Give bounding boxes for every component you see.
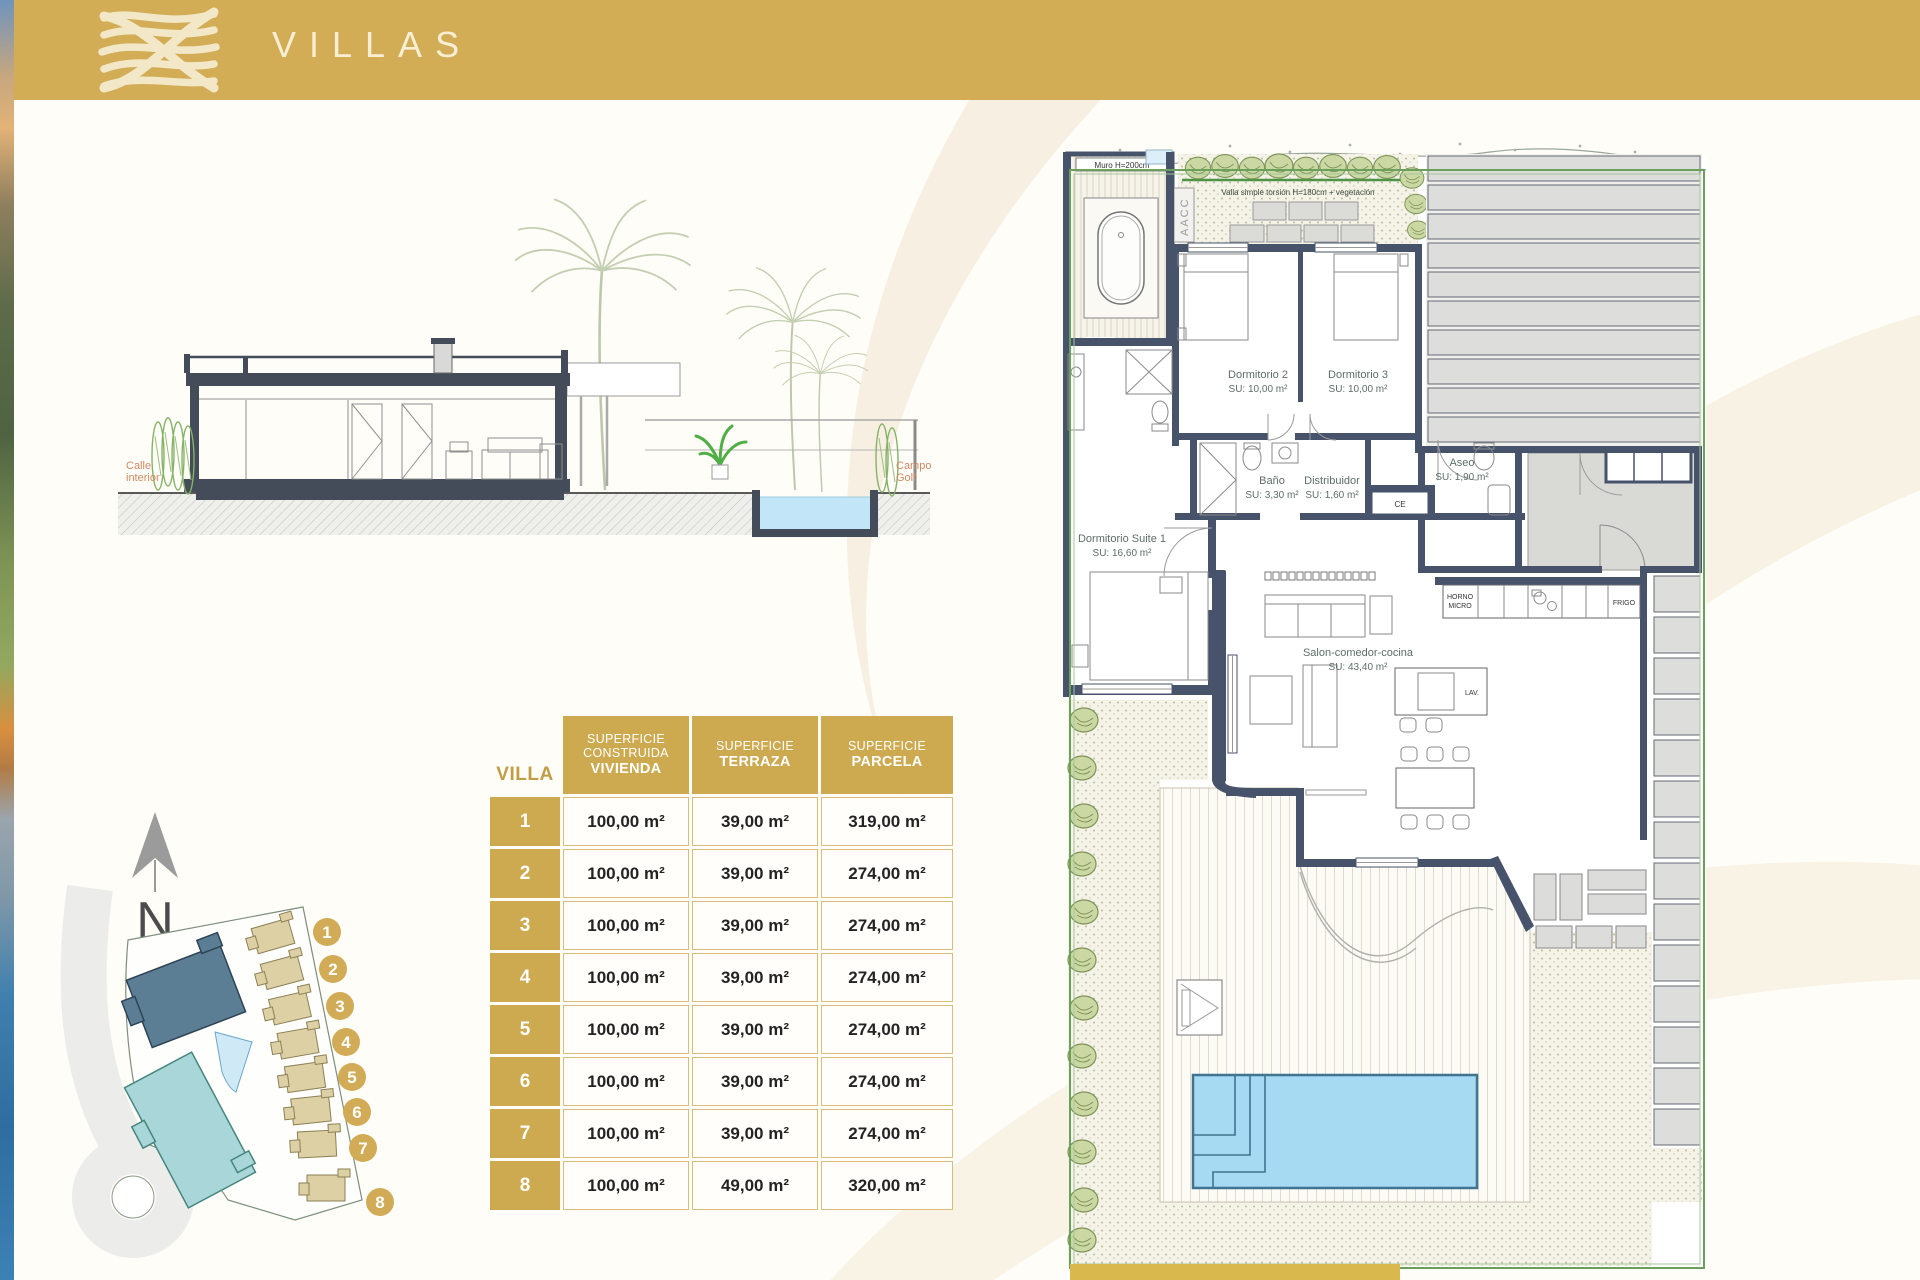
plot-badge-3: 3	[335, 997, 344, 1016]
ce-closet: CE	[1372, 492, 1428, 514]
room-label: Dormitorio Suite 1	[1078, 533, 1166, 545]
house-section	[184, 338, 570, 500]
table-cell-parcela: 274,00 m²	[821, 1109, 953, 1158]
table-row-villa-number: 1	[490, 797, 560, 846]
villa-floor-plan: Valla simple torsión H=180cm + vegetació…	[1060, 140, 1720, 1280]
table-row-villa-number: 3	[490, 901, 560, 950]
plot-badge-4: 4	[341, 1033, 351, 1052]
svg-text:SU: 10,00 m²: SU: 10,00 m²	[1229, 384, 1289, 395]
table-cell-vivienda: 100,00 m²	[563, 953, 689, 1002]
svg-text:SU: 16,60 m²: SU: 16,60 m²	[1093, 548, 1153, 559]
table-cell-vivienda: 100,00 m²	[563, 849, 689, 898]
table-cell-vivienda: 100,00 m²	[563, 1057, 689, 1106]
north-arrow-icon: N	[132, 812, 178, 950]
fence-label: Valla simple torsión H=180cm + vegetació…	[1221, 188, 1374, 197]
driveway	[1426, 154, 1702, 446]
room-label: Dormitorio 3	[1328, 369, 1388, 381]
table-cell-parcela: 274,00 m²	[821, 1057, 953, 1106]
plot-badge-7: 7	[358, 1139, 367, 1158]
table-cell-terraza: 39,00 m²	[692, 953, 818, 1002]
room-label: Aseo	[1449, 457, 1474, 469]
table-cell-parcela: 320,00 m²	[821, 1161, 953, 1210]
table-cell-vivienda: 100,00 m²	[563, 1109, 689, 1158]
kitchen-label-lav: LAV.	[1465, 690, 1479, 697]
court-window	[1606, 450, 1691, 482]
room-label: Salon-comedor-cocina	[1303, 647, 1414, 659]
table-cell-terraza: 39,00 m²	[692, 797, 818, 846]
aacc-label: AACC	[1179, 197, 1191, 236]
table-cell-terraza: 39,00 m²	[692, 849, 818, 898]
col-header-vivienda: SUPERFICIE CONSTRUIDA VIVIENDA	[563, 716, 689, 794]
plant-icon	[696, 426, 746, 479]
svg-text:SU: 3,30 m²: SU: 3,30 m²	[1245, 490, 1299, 501]
road-strip	[1070, 1264, 1400, 1280]
table-cell-vivienda: 100,00 m²	[563, 1161, 689, 1210]
pool-section	[752, 490, 878, 537]
table-row-villa-number: 6	[490, 1057, 560, 1106]
svg-text:Golf: Golf	[896, 472, 917, 484]
bathtub	[1098, 212, 1144, 304]
svg-text:SU: 1,90 m²: SU: 1,90 m²	[1435, 472, 1489, 483]
north-gravel-area: Valla simple torsión H=180cm + vegetació…	[1178, 154, 1429, 248]
table-row-villa-number: 4	[490, 953, 560, 1002]
table-cell-parcela: 274,00 m²	[821, 849, 953, 898]
porch-volume	[567, 363, 918, 490]
label-campo-golf: Campo	[896, 460, 931, 472]
table-row-villa-number: 7	[490, 1109, 560, 1158]
plot-badge-6: 6	[352, 1103, 361, 1122]
outdoor-feature-box	[1177, 980, 1222, 1035]
aacc-unit: AACC	[1174, 188, 1194, 242]
header-bar: VILLAS	[14, 0, 1920, 100]
brand-logo-icon	[96, 2, 222, 98]
table-cell-terraza: 39,00 m²	[692, 901, 818, 950]
villa-column-header: VILLA	[490, 716, 560, 794]
villa-cross-section: Calle interior Campo Golf	[100, 120, 980, 560]
svg-text:SU: 1,60 m²: SU: 1,60 m²	[1305, 490, 1359, 501]
hedge-right	[876, 424, 898, 496]
table-row-villa-number: 5	[490, 1005, 560, 1054]
label-calle-interior: Calle	[126, 460, 151, 472]
ce-label: CE	[1394, 500, 1405, 509]
page-title: VILLAS	[272, 24, 472, 66]
table-cell-terraza: 39,00 m²	[692, 1005, 818, 1054]
room-label: Dormitorio 2	[1228, 369, 1288, 381]
col-header-terraza: SUPERFICIE TERRAZA	[692, 716, 818, 794]
svg-text:SU: 43,40 m²: SU: 43,40 m²	[1329, 662, 1389, 673]
room-label: Baño	[1259, 475, 1285, 487]
courtyard: Muro H=200cm	[1068, 150, 1172, 343]
table-cell-parcela: 274,00 m²	[821, 1005, 953, 1054]
kitchen-label-horno: HORNO	[1447, 594, 1474, 601]
table-cell-parcela: 319,00 m²	[821, 797, 953, 846]
muro-label: Muro H=200cm	[1095, 161, 1150, 170]
kitchen-label-frigo: FRIGO	[1613, 600, 1636, 607]
plot-badge-2: 2	[328, 960, 337, 979]
plot-badge-1: 1	[322, 923, 331, 942]
brochure-page: VILLAS	[0, 0, 1920, 1280]
table-cell-terraza: 39,00 m²	[692, 1109, 818, 1158]
plot-badge-8: 8	[375, 1193, 384, 1212]
table-cell-vivienda: 100,00 m²	[563, 901, 689, 950]
areas-table: VILLA SUPERFICIE CONSTRUIDA VIVIENDA SUP…	[490, 716, 953, 1210]
svg-text:SU: 10,00 m²: SU: 10,00 m²	[1329, 384, 1389, 395]
svg-text:MICRO: MICRO	[1448, 603, 1472, 610]
table-row-villa-number: 8	[490, 1161, 560, 1210]
swimming-pool	[1193, 1075, 1477, 1188]
table-cell-parcela: 274,00 m²	[821, 901, 953, 950]
paver-slabs	[1534, 870, 1646, 948]
table-cell-vivienda: 100,00 m²	[563, 797, 689, 846]
col-header-parcela: SUPERFICIE PARCELA	[821, 716, 953, 794]
plot-badge-5: 5	[347, 1068, 356, 1087]
table-cell-parcela: 274,00 m²	[821, 953, 953, 1002]
room-label: Distribuidor	[1304, 475, 1360, 487]
table-cell-terraza: 39,00 m²	[692, 1057, 818, 1106]
table-cell-vivienda: 100,00 m²	[563, 1005, 689, 1054]
site-plan: N	[60, 800, 430, 1260]
left-photo-strip	[0, 0, 14, 1280]
table-cell-terraza: 49,00 m²	[692, 1161, 818, 1210]
house-interior	[199, 399, 562, 479]
entrance-court	[1528, 450, 1698, 570]
svg-text:interior: interior	[126, 472, 160, 484]
table-row-villa-number: 2	[490, 849, 560, 898]
